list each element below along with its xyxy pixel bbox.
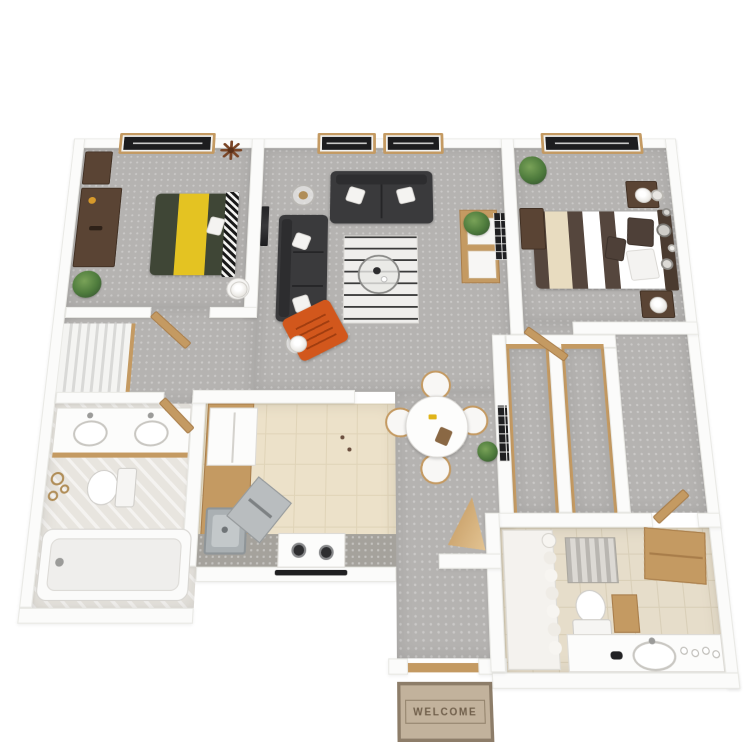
faucet (147, 412, 154, 418)
entry-wall-west (388, 658, 408, 674)
wall-decor-ring (660, 258, 674, 270)
table-decor-book (434, 426, 452, 446)
entry-threshold (408, 663, 479, 672)
bathroom-1-toilet (85, 468, 136, 505)
tan-linen-cabinet (644, 527, 707, 585)
cushion-seam (293, 251, 324, 253)
loveseat-pillow (345, 186, 366, 205)
coffee-table-decor (373, 267, 381, 274)
wall-bedroom2-south (572, 322, 699, 335)
wall-bathroom2-north (485, 513, 654, 528)
bedroom-2-lamp-north (634, 188, 652, 203)
wall-mounted-tv (260, 206, 269, 246)
dresser-decor (88, 197, 96, 204)
floor-plan-canvas: WELCOME (0, 0, 750, 750)
living-room-window-right (383, 133, 444, 154)
window-blind-slat (555, 143, 629, 145)
shower-curtain (541, 533, 557, 548)
wall-bathroom1-north (55, 392, 165, 404)
console-door (467, 250, 497, 278)
wall-bedroom1-south-a (65, 307, 152, 318)
closet-2-track-trim (561, 344, 604, 349)
window-blind-slat (132, 143, 202, 145)
bed-pillow (626, 248, 661, 281)
table-decor-yellow (429, 414, 437, 419)
wall-decor-ring (656, 223, 673, 237)
sofa-pillow (291, 232, 312, 251)
vanity-sink-basin (631, 641, 678, 671)
bedroom-2-window (541, 133, 644, 154)
toiletry-bottle (691, 649, 700, 657)
bed-pillow-dark (627, 217, 654, 247)
window-blind-slat (327, 143, 366, 145)
floor-plan: WELCOME (10, 138, 741, 688)
bedroom-1-window (118, 133, 216, 154)
range-stove (277, 533, 345, 568)
linen-closet-louvered (56, 323, 135, 391)
cabinet-seam (649, 552, 702, 559)
wall-decor-ring (667, 244, 676, 252)
stove-burner (291, 543, 306, 558)
dishwasher-handle (248, 498, 272, 519)
vanity-sink-basin (133, 420, 170, 446)
stove-burner (319, 545, 334, 560)
wall-bathroom2-north-stub (697, 513, 722, 528)
welcome-mat-text: WELCOME (405, 700, 485, 724)
loveseat-pillow (396, 186, 416, 204)
bedroom-1-bed (149, 194, 239, 276)
fridge-door-seam (231, 412, 236, 462)
sofa-back (278, 219, 292, 317)
striped-bath-mat (565, 537, 619, 583)
toiletry-bottle (712, 650, 721, 658)
wall-entry-stub (439, 554, 502, 569)
bedroom-1-dresser (72, 188, 122, 267)
loveseat-back (336, 174, 427, 184)
faucet (87, 412, 94, 418)
oven-handle (275, 570, 348, 576)
vanity-sink-basin (72, 420, 109, 446)
dining-chair (420, 454, 452, 485)
living-room-window-left (317, 133, 376, 154)
coffee-table-decor (381, 276, 388, 282)
floor-dot (347, 447, 351, 451)
window-glass (320, 135, 373, 151)
bed-pillow-dark (604, 236, 626, 262)
floor-dot (340, 435, 344, 439)
window-glass (386, 135, 441, 151)
window-glass (543, 135, 640, 151)
living-room-wall-art (493, 213, 507, 260)
cushion-seam (292, 285, 323, 287)
bedroom-1-desk (82, 151, 113, 184)
toilet-tank (114, 468, 137, 508)
bed-pillow (206, 216, 226, 236)
bathroom-2-toilet (570, 590, 610, 638)
outer-wall-bathroom1-south (17, 608, 194, 624)
dresser-decor (89, 226, 103, 230)
black-toiletry-item (610, 651, 623, 659)
shower-stall (502, 530, 561, 670)
round-glass-coffee-table (358, 255, 401, 294)
cushion-seam (381, 184, 383, 218)
bed-runner-yellow (173, 194, 209, 276)
small-wood-cabinet (611, 594, 640, 633)
wall-bedroom1-south-b (209, 307, 257, 318)
refrigerator (206, 408, 258, 466)
bathtub (35, 529, 192, 601)
bathroom-2-vanity (566, 634, 725, 672)
wall-kitchen-north (192, 390, 355, 404)
vanity-wood-base (52, 453, 188, 458)
toiletry-bottle (680, 647, 688, 655)
dining-plant (477, 441, 498, 461)
wall-decor-ring (661, 208, 671, 217)
console-plant (463, 211, 490, 235)
starburst-wall-ornament (219, 140, 244, 161)
tub-basin (46, 538, 182, 591)
toiletry-bottle (702, 647, 711, 655)
window-glass (121, 135, 213, 151)
window-blind-slat (393, 143, 434, 145)
welcome-mat: WELCOME (397, 682, 494, 742)
faucet (648, 637, 655, 644)
wall-decor-ring (650, 189, 664, 201)
living-room-loveseat (330, 171, 434, 223)
outer-wall-bathroom2-south (492, 672, 741, 689)
bedroom-2-desk (519, 208, 546, 249)
round-dining-table (405, 396, 469, 458)
bedroom-2-bed (532, 211, 679, 288)
